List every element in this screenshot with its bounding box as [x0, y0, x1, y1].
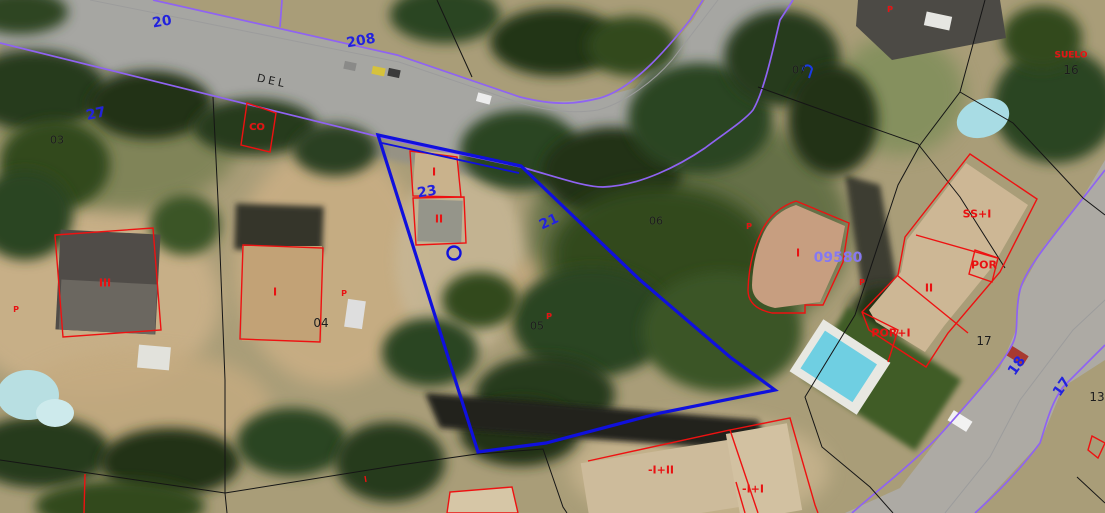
house-iii-roof-lower	[59, 280, 157, 335]
red-tick-bl-1	[84, 474, 85, 513]
shed-05-upper	[413, 151, 460, 196]
house-04-roof	[242, 246, 322, 341]
map-viewport[interactable]: 202082703DELCO23III2105P0607PSUELO16IIIP…	[0, 0, 1105, 513]
shed-05-lower	[417, 199, 462, 243]
red-tick-bl-2	[365, 476, 366, 482]
white-shed	[137, 345, 171, 371]
aerial-basemap	[0, 0, 1105, 513]
pool-bottomleft-b	[36, 399, 74, 427]
